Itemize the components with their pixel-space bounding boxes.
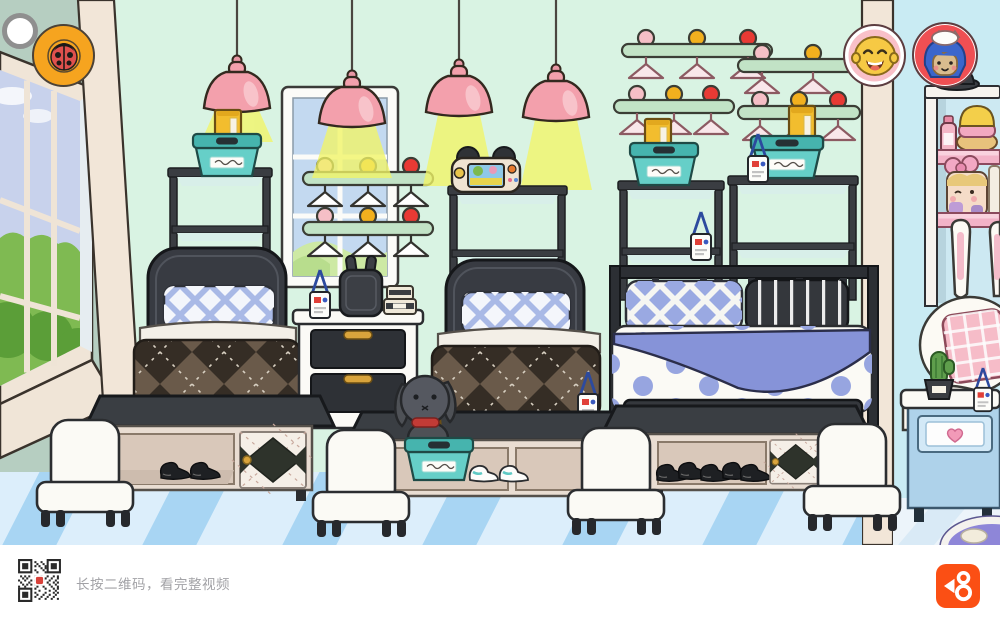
- avatar-button-1[interactable]: [843, 24, 906, 87]
- avatar-button-2[interactable]: [912, 22, 978, 88]
- ladybug-pet-button[interactable]: [32, 24, 95, 87]
- kuaishou-camera-icon: [936, 564, 980, 608]
- game-screen: 长按二维码，看完整视频: [0, 0, 1000, 620]
- hanger-rail-mid-2: [303, 208, 433, 256]
- white-chair-4[interactable]: [804, 424, 900, 531]
- bed-middle: [432, 260, 600, 420]
- storage-basket-1[interactable]: [193, 134, 261, 176]
- stacked-jars[interactable]: [384, 286, 416, 314]
- video-caption-bar: 长按二维码，看完整视频: [0, 545, 1000, 620]
- doll-jar-2[interactable]: [989, 166, 1000, 216]
- room-scene: [0, 0, 1000, 545]
- kuaishou-logo[interactable]: [936, 564, 980, 608]
- blue-hair-cat-hat-face-icon: [915, 25, 975, 85]
- laughing-bald-face-icon: [847, 28, 903, 84]
- bed-left: [134, 248, 300, 408]
- storage-basket-floor[interactable]: [405, 438, 473, 480]
- caption-text: 长按二维码，看完整视频: [76, 545, 230, 620]
- slipper[interactable]: [961, 529, 987, 543]
- storage-basket-3[interactable]: [630, 143, 698, 185]
- camera-button[interactable]: [2, 13, 38, 49]
- white-chair-3[interactable]: [568, 428, 664, 535]
- striped-pillow[interactable]: [746, 280, 848, 332]
- diamond-door[interactable]: [232, 424, 314, 496]
- white-diamond-pillow[interactable]: [626, 281, 742, 331]
- white-chair-1[interactable]: [37, 420, 133, 527]
- qr-code[interactable]: [16, 557, 63, 604]
- white-chair-2[interactable]: [313, 430, 409, 537]
- burger-hat[interactable]: [957, 106, 997, 152]
- ladybug-icon: [36, 28, 92, 84]
- cosmetic-tube[interactable]: [941, 116, 956, 153]
